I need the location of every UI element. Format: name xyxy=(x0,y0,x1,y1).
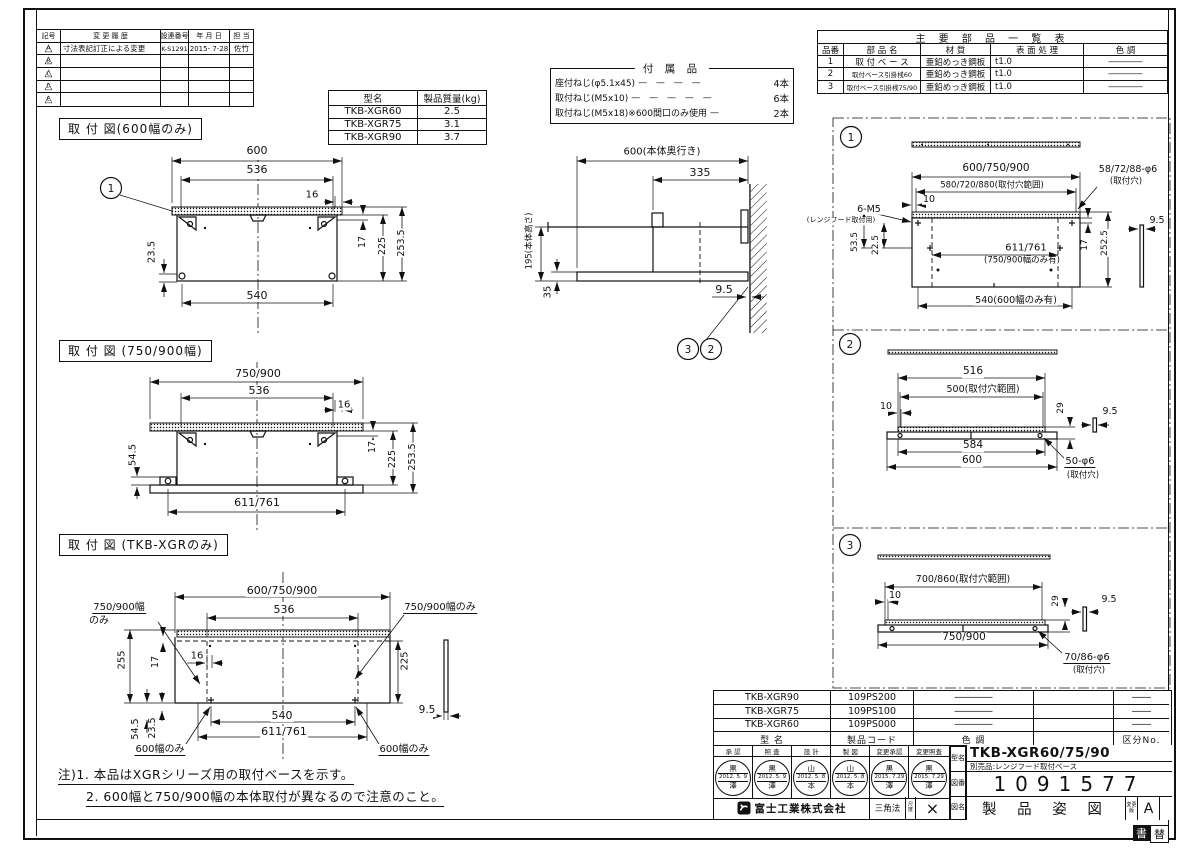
dim-label-p2_10: 10 xyxy=(879,402,893,412)
drawing-name: 製 品 姿 図 xyxy=(967,797,1125,820)
accessory-name: 座付ねじ(φ5.1x45) xyxy=(555,76,635,89)
revision-header: 変 更 履 歴 xyxy=(61,30,161,43)
hanko-stamp: 山2012. 5. 8本 xyxy=(793,760,829,796)
tb-model-cell: TKB-XGR90 xyxy=(714,691,831,705)
dim-label-p1_611: 611/761 xyxy=(1004,243,1048,254)
tb-model-header: 型 名 xyxy=(714,732,831,746)
revision-mark: △E xyxy=(37,93,61,106)
dim-label-d3_lbl_l1: 750/900幅 xyxy=(92,602,146,614)
parts-cell: 亜鉛めっき鋼板 xyxy=(921,68,991,80)
accessory-name: 取付ねじ(M5x10) xyxy=(555,91,628,104)
dim-label-d3_536: 536 xyxy=(273,604,296,616)
dim-label-p2_29: 29 xyxy=(1057,401,1067,414)
rev-spare-cell xyxy=(1159,797,1172,820)
dim-label-d2_536: 536 xyxy=(248,385,271,397)
dim-label-d3_9_5: 9.5 xyxy=(418,705,437,717)
hanko-stamp: 黒2015. 7.29澤 xyxy=(911,760,947,796)
stamp-top: 黒 xyxy=(925,765,933,774)
dim-label-d3_lbl_l2: のみ xyxy=(88,616,110,627)
revision-no: K-S1291 xyxy=(161,43,189,56)
tb-model-header: 区分No. xyxy=(1114,732,1169,746)
tb-model-cell xyxy=(1034,691,1114,705)
revision-mark: △D xyxy=(37,81,61,94)
revision-mark: △C xyxy=(37,68,61,81)
dim-label-p1_580: 580/720/880(取付穴範囲) xyxy=(939,181,1045,190)
parts-header: 部 品 名 xyxy=(844,44,921,56)
parts-header: 材 質 xyxy=(921,44,991,56)
note-2: 2. 600幅と750/900幅の本体取付が異なるので注意のこと。 xyxy=(86,786,444,807)
rev-value: A xyxy=(1137,797,1159,820)
dim-label-d3_255: 255 xyxy=(117,649,128,670)
panel-balloon-3: 3 xyxy=(847,540,854,552)
accessory-qty: 6本 xyxy=(763,91,789,105)
dim-label-p3_10: 10 xyxy=(888,591,902,601)
dim-label-d3_54_5: 54.5 xyxy=(131,717,141,740)
dim-label-p2_hole: 50-φ6 xyxy=(1064,456,1095,468)
dim-label-p3_hole2: (取付穴) xyxy=(1072,666,1106,675)
dim-label-d1_17: 17 xyxy=(358,235,368,249)
approval-stamp-cell: 山2012. 5. 8本 xyxy=(792,757,831,798)
dim-label-p2_600: 600 xyxy=(961,455,983,467)
side-label-number: 図番 xyxy=(950,772,966,797)
mass-cell: TKB-XGR90 xyxy=(329,131,418,144)
main-parts-table: 主 要 部 品 一 覧 表品番部 品 名材 質表 面 処 理色 調1取 付 ベ … xyxy=(817,30,1168,94)
arrow-leaders xyxy=(137,187,1156,744)
revision-date xyxy=(189,81,230,94)
drawing-name-row: 製 品 姿 図 変更版 A xyxy=(966,797,1172,820)
dim-label-d3_23_5: 23.5 xyxy=(148,716,158,739)
scale-value: × xyxy=(915,797,949,819)
dim-label-p2_9_5: 9.5 xyxy=(1101,407,1118,417)
approval-header: 変更承認 xyxy=(870,746,909,757)
accessory-dash: — — — — xyxy=(635,78,763,88)
approval-stamp-cell: 黒2012. 5. 9澤 xyxy=(753,757,792,798)
approval-header: 照 査 xyxy=(753,746,792,757)
parts-cell: 3 xyxy=(818,81,844,93)
revision-desc xyxy=(61,81,161,94)
revision-desc: 寸法表記訂正による変更 xyxy=(61,43,161,56)
revision-by xyxy=(230,68,253,81)
revision-triangle-icon: △E xyxy=(45,95,53,105)
scale-label: 尺度 xyxy=(905,797,915,819)
approval-header: 変更照査 xyxy=(909,746,948,757)
revision-mark-letter: D xyxy=(47,85,51,90)
tb-model-cell xyxy=(1034,705,1114,719)
stamp-bottom: 澤 xyxy=(768,782,776,791)
rewrite-char-1: 書 xyxy=(1133,825,1150,841)
dim-label-p1_17: 17 xyxy=(1081,238,1091,251)
mass-cell: 3.7 xyxy=(418,131,486,144)
tb-model-cell: ―――― xyxy=(914,691,1034,705)
dim-label-d3_bl: 600幅のみ xyxy=(134,744,185,756)
dim-label-d3_br: 600幅のみ xyxy=(378,744,429,756)
stamp-top: 黒 xyxy=(768,765,776,774)
dim-label-p3_9_5: 9.5 xyxy=(1100,595,1117,605)
parts-cell: 亜鉛めっき鋼板 xyxy=(921,56,991,68)
revision-no xyxy=(161,68,189,81)
parts-cell: 取 付 ベ ー ス xyxy=(844,56,921,68)
parts-cell: ―――― xyxy=(1084,56,1167,68)
revision-triangle-icon: △B xyxy=(45,56,53,66)
drawing-sheet: 1 3 2 1 2 3 記号変 更 履 歴設連番号年 月 日担 当△A寸法表記訂… xyxy=(0,0,1200,848)
accessory-item: 座付ねじ(φ5.1x45)— — — —4本 xyxy=(555,75,789,90)
revision-mark-letter: E xyxy=(47,98,50,103)
parts-cell: t1.0 xyxy=(991,68,1084,80)
dim-label-d2_17: 17 xyxy=(368,440,378,454)
revision-date xyxy=(189,55,230,68)
approval-stamp-cell: 黒2015. 7.29澤 xyxy=(870,757,909,798)
dim-label-p3_750900: 750/900 xyxy=(941,632,987,644)
balloon-3: 3 xyxy=(685,344,692,356)
revision-by xyxy=(230,93,253,106)
dim-label-p1_9_5: 9.5 xyxy=(1148,216,1165,226)
parts-cell: ―――― xyxy=(1084,81,1167,93)
revision-date xyxy=(189,68,230,81)
parts-cell: 取付ベース引掛桟75/90 xyxy=(844,81,921,93)
dim-label-p2_516: 516 xyxy=(962,366,984,378)
stamp-top: 山 xyxy=(807,765,815,774)
dim-label-d2_54_5: 54.5 xyxy=(128,443,139,467)
revision-history-table: 記号変 更 履 歴設連番号年 月 日担 当△A寸法表記訂正による変更K-S129… xyxy=(36,29,254,107)
revision-by xyxy=(230,55,253,68)
dim-label-d2_750900: 750/900 xyxy=(234,368,282,380)
hanko-stamp: 山2012. 5. 8本 xyxy=(832,760,868,796)
dim-label-d2_16: 16 xyxy=(337,400,352,411)
tb-model-cell: TKB-XGR60 xyxy=(714,719,831,733)
model-value: TKB-XGR60/75/90 xyxy=(966,745,1172,762)
revision-triangle-icon: △D xyxy=(45,82,53,92)
fuji-kogyo-logo-icon xyxy=(737,801,751,815)
panel-balloon-1: 1 xyxy=(848,132,855,144)
note-1: 注)1. 本品はXGRシリーズ用の取付ベースを示す。 xyxy=(58,764,354,785)
tb-model-header: 色 調 xyxy=(914,732,1034,746)
accessories-list: 座付ねじ(φ5.1x45)— — — —4本取付ねじ(M5x10)— — — —… xyxy=(551,75,793,120)
mass-cell: TKB-XGR75 xyxy=(329,119,418,132)
dim-label-p1_600750900: 600/750/900 xyxy=(961,163,1030,175)
dim-label-sv_35: 35 xyxy=(543,285,554,300)
subtitle: 別売品:レンジフード取付ベース xyxy=(966,762,1172,772)
company-name: 富士工業株式会社 xyxy=(755,801,847,816)
parts-header: 色 調 xyxy=(1084,44,1167,56)
rewrite-badge: 書 替 xyxy=(1133,825,1169,843)
dim-label-sv_9_5: 9.5 xyxy=(714,284,734,296)
stamp-bottom: 本 xyxy=(807,782,815,791)
revision-header: 記号 xyxy=(37,30,61,43)
accessory-dash: — xyxy=(707,108,763,118)
accessories-title: 付 属 品 xyxy=(635,61,709,76)
dim-label-d3_611: 611/761 xyxy=(260,726,308,738)
approval-header: 設 計 xyxy=(792,746,831,757)
model-mass-table: 型名製品質量(kg)TKB-XGR602.5TKB-XGR753.1TKB-XG… xyxy=(328,90,487,145)
revision-header: 設連番号 xyxy=(161,30,189,43)
dim-label-p1_10: 10 xyxy=(922,195,936,205)
tb-model-cell: 109PS100 xyxy=(831,705,914,719)
hanko-stamp: 黒2012. 5. 9澤 xyxy=(754,760,790,796)
accessory-name: 取付ねじ(M5x18)※600間口のみ使用 xyxy=(555,106,707,119)
dim-label-d1_225: 225 xyxy=(378,236,388,256)
parts-table-title: 主 要 部 品 一 覧 表 xyxy=(818,31,1167,44)
title-block-right: TKB-XGR60/75/90 別売品:レンジフード取付ベース 1091577 … xyxy=(966,745,1172,820)
model-code-table: TKB-XGR90109PS200――――――TKB-XGR75109PS100… xyxy=(713,690,1172,747)
dim-label-d3_540: 540 xyxy=(271,710,294,722)
dim-label-d3_lbl_r: 750/900幅のみ xyxy=(403,602,477,614)
view-title-600: 取 付 図(600幅のみ) xyxy=(59,118,202,140)
dim-label-p3_700860: 700/860(取付穴範囲) xyxy=(915,575,1011,585)
revision-no xyxy=(161,93,189,106)
stamp-top: 黒 xyxy=(886,765,894,774)
dim-label-p1_hole: 58/72/88-φ6 xyxy=(1098,165,1158,175)
revision-by: 佐竹 xyxy=(230,43,253,56)
company-cell: 富士工業株式会社 xyxy=(714,797,869,819)
dim-label-p1_22_5: 22.5 xyxy=(872,234,882,256)
dim-label-p3_hole: 70/86-φ6 xyxy=(1063,652,1110,664)
tb-model-cell: TKB-XGR75 xyxy=(714,705,831,719)
tb-model-cell: ―― xyxy=(1114,705,1169,719)
dim-label-d1_16: 16 xyxy=(305,190,320,201)
parts-cell: t1.0 xyxy=(991,56,1084,68)
dim-label-d1_536: 536 xyxy=(246,164,269,176)
accessory-qty: 2本 xyxy=(763,106,789,120)
projection-method: 三角法 xyxy=(869,797,905,819)
tb-model-cell: ―― xyxy=(1114,691,1169,705)
dim-label-p1_611b: (750/900幅のみ有) xyxy=(983,256,1061,265)
drawing-number: 1091577 xyxy=(966,772,1172,797)
stamp-bottom: 澤 xyxy=(886,782,894,791)
tb-model-cell xyxy=(1034,719,1114,733)
parts-header: 表 面 処 理 xyxy=(991,44,1084,56)
stamp-top: 山 xyxy=(847,765,855,774)
revision-header: 年 月 日 xyxy=(189,30,230,43)
tb-model-cell: ―― xyxy=(1114,719,1169,733)
revision-mark-letter: B xyxy=(47,59,50,64)
revision-desc xyxy=(61,55,161,68)
panel-balloon-2: 2 xyxy=(847,339,854,351)
company-row: 富士工業株式会社 三角法 尺度 × xyxy=(713,797,950,820)
dim-label-p3_29: 29 xyxy=(1052,594,1062,607)
dim-label-d2_225: 225 xyxy=(388,449,398,469)
revision-header: 担 当 xyxy=(230,30,253,43)
approval-header: 承 認 xyxy=(714,746,753,757)
balloon-callouts xyxy=(101,127,862,556)
mass-header: 製品質量(kg) xyxy=(418,91,486,106)
accessory-item: 取付ねじ(M5x10)— — — — —6本 xyxy=(555,90,789,105)
revision-mark-letter: C xyxy=(47,72,51,77)
mass-cell: TKB-XGR60 xyxy=(329,106,418,119)
dim-label-p2_hole2: (取付穴) xyxy=(1066,471,1100,480)
mass-cell: 3.1 xyxy=(418,119,486,132)
revision-date: 2015- 7-28 xyxy=(189,43,230,56)
parts-header: 品番 xyxy=(818,44,844,56)
revision-no xyxy=(161,81,189,94)
dim-label-sv_335: 335 xyxy=(689,167,712,179)
balloon-1: 1 xyxy=(108,183,115,195)
tb-model-cell: ―――― xyxy=(914,705,1034,719)
revision-date xyxy=(189,93,230,106)
dim-label-sv_195: 195(本体高さ) xyxy=(525,212,534,271)
revision-triangle-icon: △A xyxy=(45,44,53,54)
dim-label-p1_6m5: 6-M5 xyxy=(856,205,882,215)
dim-label-d2_611: 611/761 xyxy=(233,497,281,509)
approval-stamp-cell: 黒2015. 7.29澤 xyxy=(909,757,948,798)
tb-model-cell: 109PS000 xyxy=(831,719,914,733)
hanger-rail-strips xyxy=(150,142,1080,637)
revision-mark-letter: A xyxy=(47,47,50,52)
tb-model-header xyxy=(1034,732,1114,746)
dim-label-p2_500: 500(取付穴範囲) xyxy=(945,385,1020,395)
accessory-dash: — — — — — xyxy=(628,93,763,103)
stamp-bottom: 本 xyxy=(847,782,855,791)
rev-label: 変更版 xyxy=(1125,797,1137,820)
dim-label-p1_53_5: 53.5 xyxy=(851,231,861,253)
parts-cell: 取付ベース引掛桟60 xyxy=(844,68,921,80)
hanko-stamp: 黒2015. 7.29澤 xyxy=(871,760,907,796)
revision-triangle-icon: △C xyxy=(45,69,53,79)
title-block-side-labels: 型名図番図名 xyxy=(950,745,966,820)
dim-label-d1_253_5: 253.5 xyxy=(397,228,407,257)
dim-label-p1_6m5b: (レンジフード取付用) xyxy=(806,217,876,225)
dim-label-d1_23_5: 23.5 xyxy=(147,240,158,264)
dim-label-p2_584: 584 xyxy=(962,440,984,452)
parts-cell: t1.0 xyxy=(991,81,1084,93)
stamp-bottom: 澤 xyxy=(925,782,933,791)
revision-mark: △B xyxy=(37,55,61,68)
accessories-box: 付 属 品 座付ねじ(φ5.1x45)— — — —4本取付ねじ(M5x10)—… xyxy=(550,68,794,124)
dim-label-p1_252_5: 252.5 xyxy=(1101,229,1111,257)
accessory-item: 取付ねじ(M5x18)※600間口のみ使用—2本 xyxy=(555,105,789,120)
side-label-model: 型名 xyxy=(950,745,966,772)
parts-cell: ―――― xyxy=(1084,68,1167,80)
dim-label-sv_600: 600(本体奥行き) xyxy=(623,147,702,158)
tb-model-cell: 109PS200 xyxy=(831,691,914,705)
accessory-qty: 4本 xyxy=(763,76,789,90)
balloon-2: 2 xyxy=(708,344,715,356)
tb-model-cell: ―――― xyxy=(914,719,1034,733)
view-title-750-900: 取 付 図 (750/900幅) xyxy=(59,340,212,362)
view-title-tkb-xgr: 取 付 図 (TKB-XGRのみ) xyxy=(59,534,228,556)
dim-label-d1_600: 600 xyxy=(246,145,269,157)
dim-label-d2_253_5: 253.5 xyxy=(408,442,418,471)
parts-cell: 2 xyxy=(818,68,844,80)
revision-no xyxy=(161,55,189,68)
hanko-stamp: 黒2012. 5. 9澤 xyxy=(715,760,751,796)
approval-stamp-cell: 黒2012. 5. 9澤 xyxy=(714,757,753,798)
mass-header: 型名 xyxy=(329,91,418,106)
dim-label-d3_17: 17 xyxy=(151,655,161,669)
stamp-bottom: 澤 xyxy=(729,782,737,791)
dim-label-p1_hole2: (取付穴) xyxy=(1109,177,1143,186)
revision-desc xyxy=(61,68,161,81)
rewrite-char-2: 替 xyxy=(1150,825,1169,843)
dim-label-p1_540: 540(600幅のみ有) xyxy=(974,296,1058,306)
dim-label-d3_600750900: 600/750/900 xyxy=(246,585,318,597)
approval-stamp-table: 承 認照 査設 計製 図変更承認変更照査黒2012. 5. 9澤黒2012. 5… xyxy=(713,745,950,799)
mass-cell: 2.5 xyxy=(418,106,486,119)
revision-by xyxy=(230,81,253,94)
revision-desc xyxy=(61,93,161,106)
stamp-top: 黒 xyxy=(729,765,737,774)
approval-header: 製 図 xyxy=(831,746,870,757)
revision-mark: △A xyxy=(37,43,61,56)
title-block: TKB-XGR90109PS200――――――TKB-XGR75109PS100… xyxy=(713,690,1172,820)
parts-cell: 1 xyxy=(818,56,844,68)
dim-label-d3_225: 225 xyxy=(400,650,411,671)
approval-stamp-cell: 山2012. 5. 8本 xyxy=(831,757,870,798)
parts-cell: 亜鉛めっき鋼板 xyxy=(921,81,991,93)
side-label-name: 図名 xyxy=(950,797,966,820)
dim-label-d3_16: 16 xyxy=(190,651,205,662)
dim-label-d1_540: 540 xyxy=(246,290,269,302)
tb-model-header: 製品コード xyxy=(831,732,914,746)
